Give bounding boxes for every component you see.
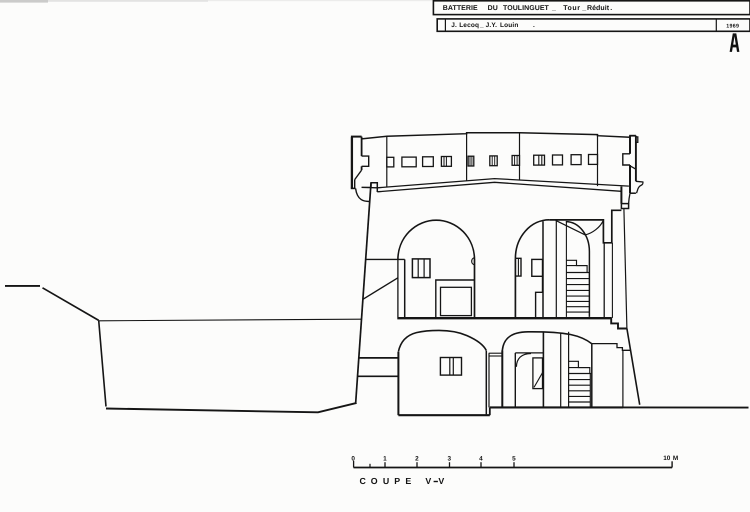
svg-text:1: 1: [383, 455, 387, 462]
svg-text:C: C: [360, 476, 367, 486]
svg-text:BATTERIE: BATTERIE: [443, 5, 478, 12]
svg-text:10: 10: [663, 455, 671, 462]
svg-text:Tour: Tour: [563, 5, 580, 12]
svg-text:U: U: [383, 476, 389, 486]
svg-text:E: E: [405, 476, 411, 486]
svg-text:_: _: [581, 5, 586, 12]
svg-text:V: V: [425, 476, 431, 486]
svg-text:1969: 1969: [726, 24, 739, 30]
svg-text:0: 0: [351, 455, 355, 462]
svg-text:J.Y.: J.Y.: [486, 22, 497, 29]
svg-text:J.: J.: [451, 22, 457, 29]
svg-text:Réduit: Réduit: [587, 4, 610, 12]
svg-text:4: 4: [479, 455, 483, 462]
svg-text:.: .: [610, 5, 612, 12]
svg-text:V: V: [438, 476, 444, 486]
svg-text:TOULINGUET: TOULINGUET: [503, 5, 550, 12]
svg-text:Louin: Louin: [500, 22, 518, 29]
svg-text:.: .: [533, 22, 535, 29]
svg-text:O: O: [371, 476, 378, 486]
svg-text:DU: DU: [488, 5, 498, 12]
svg-text:5: 5: [512, 455, 516, 462]
svg-text:2: 2: [415, 455, 419, 462]
svg-text:P: P: [394, 476, 400, 486]
svg-text:M: M: [673, 455, 678, 462]
svg-text:_: _: [551, 5, 556, 12]
svg-text:_: _: [479, 22, 484, 29]
svg-text:3: 3: [448, 455, 452, 462]
svg-text:Lecoq: Lecoq: [459, 22, 479, 29]
